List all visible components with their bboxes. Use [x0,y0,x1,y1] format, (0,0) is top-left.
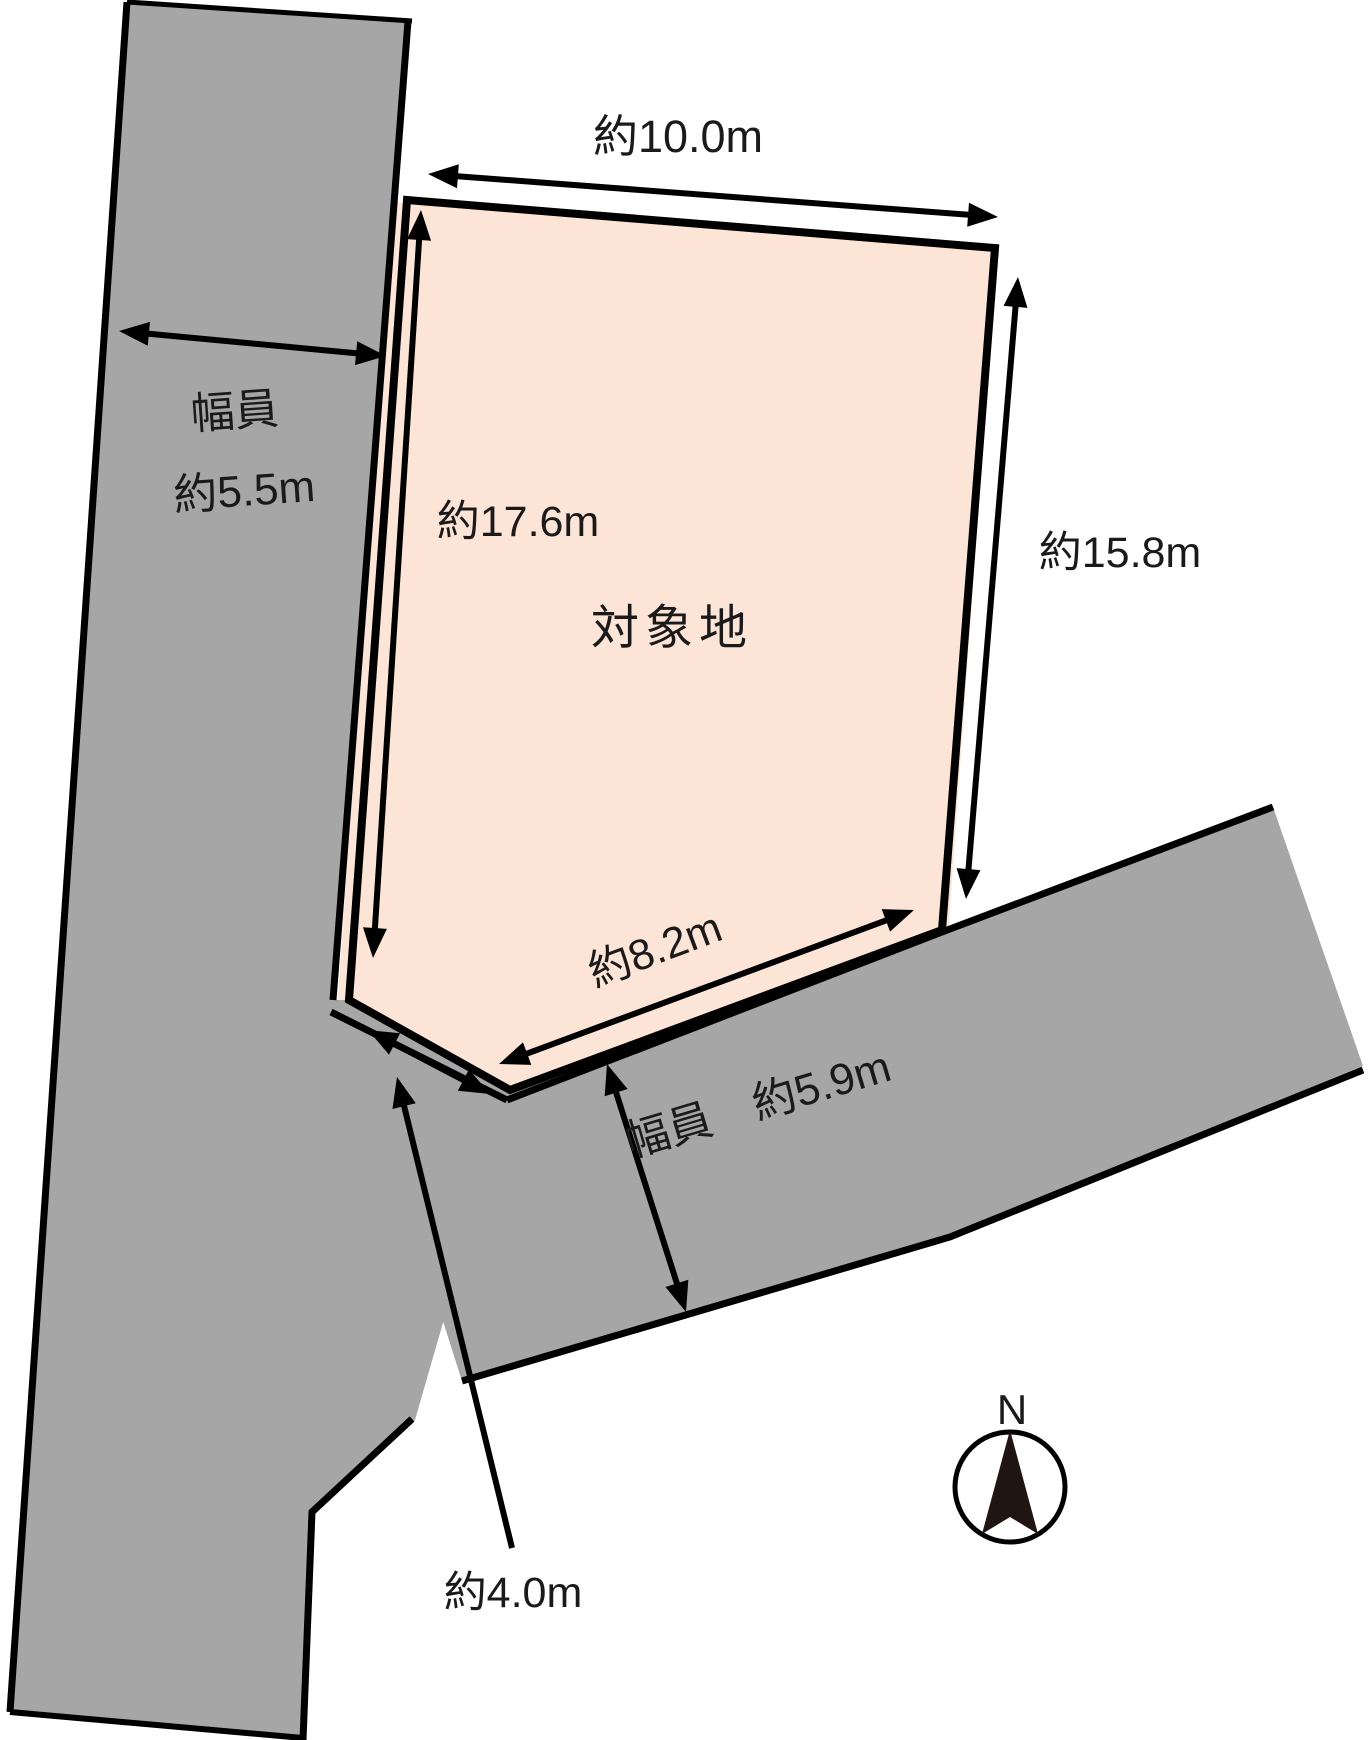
west-depth-label: 約17.6m [437,498,600,546]
land-plot-diagram: 約10.0m 幅員 約5.5m 約17.6m 対象地 約15.8m 約8.2m … [0,0,1370,1740]
top-width-label: 約10.0m [593,111,763,162]
north-label: N [997,1386,1027,1433]
diagram-canvas: 約10.0m 幅員 約5.5m 約17.6m 対象地 約15.8m 約8.2m … [0,0,1370,1740]
dim-arrow-top-width-head-end [967,203,998,227]
dim-arrow-east-depth-head-start [1004,277,1028,308]
dim-arrow-east-depth-head-end [957,868,981,899]
corner-cut-label: 約4.0m [444,1569,583,1617]
east-depth-label: 約15.8m [1039,529,1202,577]
compass: N [955,1386,1065,1542]
site-label: 対象地 [591,602,753,655]
west-road-caption-line1: 幅員 [189,384,280,439]
west-road-caption-line2: 約5.5m [172,462,317,521]
dim-arrow-top-width-head-start [428,164,459,188]
